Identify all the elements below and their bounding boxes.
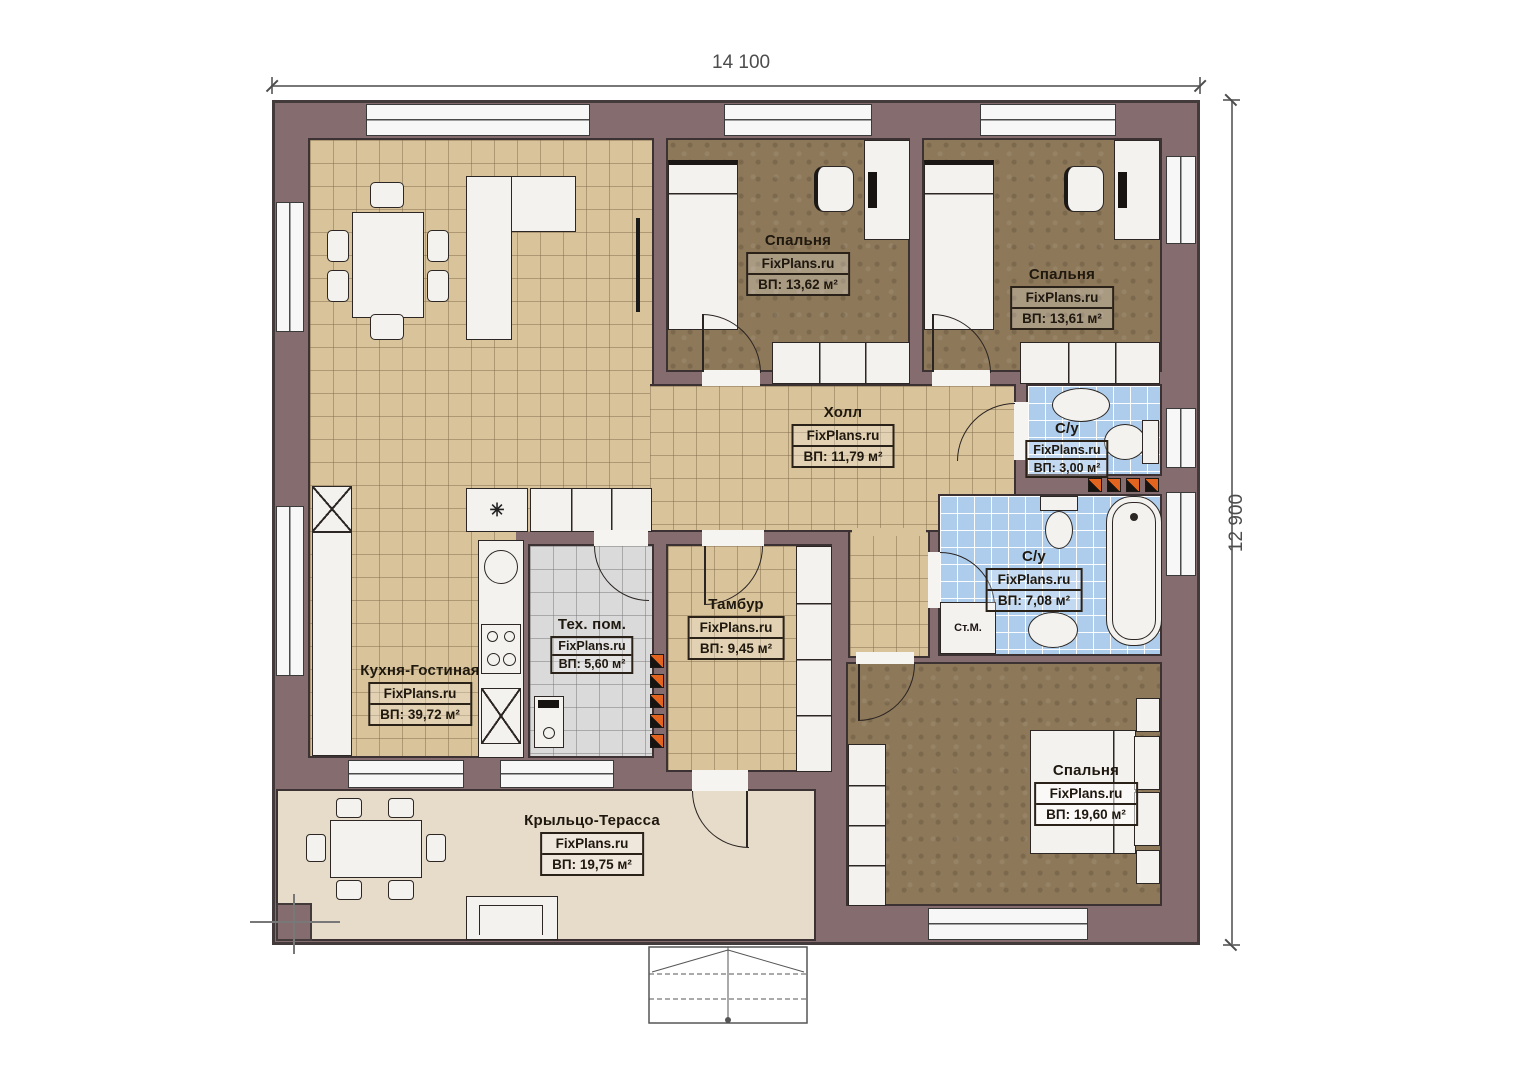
room-area: ВП: 13,61 м² [1012, 307, 1112, 328]
dining-table [352, 212, 424, 318]
room-name: Тех. пом. [550, 616, 633, 633]
room-label-bedroom-1: Спальня FixPlans.ru ВП: 13,62 м² [746, 232, 850, 296]
chair [388, 798, 414, 818]
toilet-tank [1142, 420, 1159, 464]
room-label-bedroom-2: Спальня FixPlans.ru ВП: 13,61 м² [1010, 266, 1114, 330]
hall-extension-floor [848, 532, 930, 658]
room-area: ВП: 9,45 м² [690, 637, 783, 658]
window [1166, 156, 1196, 244]
width-dimension-label: 14 100 [712, 52, 770, 74]
toilet-bowl [1104, 424, 1146, 460]
door-leaf [746, 791, 748, 847]
desk-chair [814, 166, 854, 212]
window [348, 760, 464, 788]
room-area: ВП: 7,08 м² [988, 589, 1081, 610]
door-leaf [858, 664, 860, 720]
width-dimension-line [272, 85, 1200, 87]
ladder-rung [650, 674, 664, 688]
wardrobe [848, 744, 886, 906]
axis-line [250, 921, 340, 923]
window [1166, 492, 1196, 576]
window [276, 202, 304, 332]
sink [1028, 612, 1078, 648]
bedroom-master-door [856, 652, 914, 664]
brand-watermark: FixPlans.ru [1027, 442, 1106, 458]
brand-watermark: FixPlans.ru [690, 618, 783, 637]
chair [327, 230, 349, 262]
heater-cell [1107, 478, 1121, 492]
room-label-wc-small: С/у FixPlans.ru ВП: 3,00 м² [1025, 420, 1108, 478]
brand-watermark: FixPlans.ru [748, 254, 848, 273]
room-name: С/у [1025, 420, 1108, 437]
room-label-kitchen-living: Кухня-Гостиная FixPlans.ru ВП: 39,72 м² [360, 662, 479, 726]
window [980, 104, 1116, 136]
bathtub [1106, 496, 1162, 646]
brand-watermark: FixPlans.ru [1036, 784, 1136, 803]
room-area: ВП: 3,00 м² [1027, 458, 1106, 476]
room-name: Крыльцо-Терасса [524, 812, 660, 829]
toilet-tank [1040, 496, 1078, 511]
kitchen-cabinet [530, 488, 652, 532]
ladder-rung [650, 734, 664, 748]
terrace-table [330, 820, 422, 878]
room-area: ВП: 19,60 м² [1036, 803, 1136, 824]
chair [427, 230, 449, 262]
axis-line [293, 894, 295, 954]
bench [466, 896, 558, 940]
brand-watermark: FixPlans.ru [1012, 288, 1112, 307]
door-leaf [932, 314, 934, 372]
kitchen-sink [484, 550, 518, 584]
window [928, 908, 1088, 940]
entrance-steps [648, 946, 808, 1024]
wardrobe [796, 546, 832, 772]
desk-chair [1064, 166, 1104, 212]
bed [924, 160, 994, 330]
heater-cell [1145, 478, 1159, 492]
toilet-bowl [1045, 511, 1073, 549]
monitor [1118, 172, 1127, 208]
nightstand [1136, 850, 1160, 884]
sofa [466, 176, 512, 340]
brand-watermark: FixPlans.ru [370, 684, 470, 703]
stove [481, 624, 521, 674]
room-label-tech-room: Тех. пом. FixPlans.ru ВП: 5,60 м² [550, 616, 633, 674]
room-name: С/у [986, 548, 1083, 565]
window [500, 760, 614, 788]
brand-watermark: FixPlans.ru [988, 570, 1081, 589]
hall-seam [852, 528, 926, 536]
ladder-rung [650, 654, 664, 668]
room-label-bedroom-master: Спальня FixPlans.ru ВП: 19,60 м² [1034, 762, 1138, 826]
room-area: ВП: 5,60 м² [552, 654, 631, 672]
boiler [534, 696, 564, 748]
pillow [1134, 792, 1160, 846]
room-name: Спальня [1010, 266, 1114, 283]
window [724, 104, 872, 136]
heater-cell [1126, 478, 1140, 492]
window [276, 506, 304, 676]
chair [327, 270, 349, 302]
room-area: ВП: 11,79 м² [794, 445, 893, 466]
room-area: ВП: 13,62 м² [748, 273, 848, 294]
room-label-wc-big: С/у FixPlans.ru ВП: 7,08 м² [986, 548, 1083, 612]
fridge: ✳ [466, 488, 528, 532]
chair [426, 834, 446, 862]
room-name: Холл [792, 404, 895, 421]
brand-watermark: FixPlans.ru [794, 426, 893, 445]
room-name: Спальня [1034, 762, 1138, 779]
chair [370, 182, 404, 208]
tech-room-door [594, 530, 648, 546]
room-label-hall: Холл FixPlans.ru ВП: 11,79 м² [792, 404, 895, 468]
monitor [868, 172, 877, 208]
chair [388, 880, 414, 900]
room-name: Кухня-Гостиная [360, 662, 479, 679]
ladder-rung [650, 694, 664, 708]
kitchen-cabinet [312, 486, 352, 532]
brand-watermark: FixPlans.ru [542, 834, 642, 853]
entrance-door [692, 770, 748, 791]
chair [370, 314, 404, 340]
ladder-rung [650, 714, 664, 728]
kitchen-counter [312, 532, 352, 756]
window [1166, 408, 1196, 468]
room-name: Тамбур [688, 596, 785, 613]
room-label-tambour: Тамбур FixPlans.ru ВП: 9,45 м² [688, 596, 785, 660]
heater-cell [1088, 478, 1102, 492]
window [366, 104, 590, 136]
tv [636, 218, 640, 312]
dishwasher [481, 688, 521, 744]
room-label-terrace: Крыльцо-Терасса FixPlans.ru ВП: 19,75 м² [524, 812, 660, 876]
height-dimension-label: 12 900 [1226, 494, 1248, 552]
wardrobe [1020, 342, 1160, 384]
room-name: Спальня [746, 232, 850, 249]
wc-big-door [928, 552, 940, 608]
pillow [1134, 736, 1160, 790]
room-area: ВП: 39,72 м² [370, 703, 470, 724]
chair [427, 270, 449, 302]
room-area: ВП: 19,75 м² [542, 853, 642, 874]
chair [306, 834, 326, 862]
door-leaf [702, 314, 704, 372]
tambour-door [702, 530, 764, 546]
nightstand [1136, 698, 1160, 732]
sink [1052, 388, 1110, 422]
chair [336, 798, 362, 818]
brand-watermark: FixPlans.ru [552, 638, 631, 654]
chair [336, 880, 362, 900]
floor-plan: 14 100 12 900 [0, 0, 1528, 1080]
bed [668, 160, 738, 330]
wardrobe [772, 342, 910, 384]
